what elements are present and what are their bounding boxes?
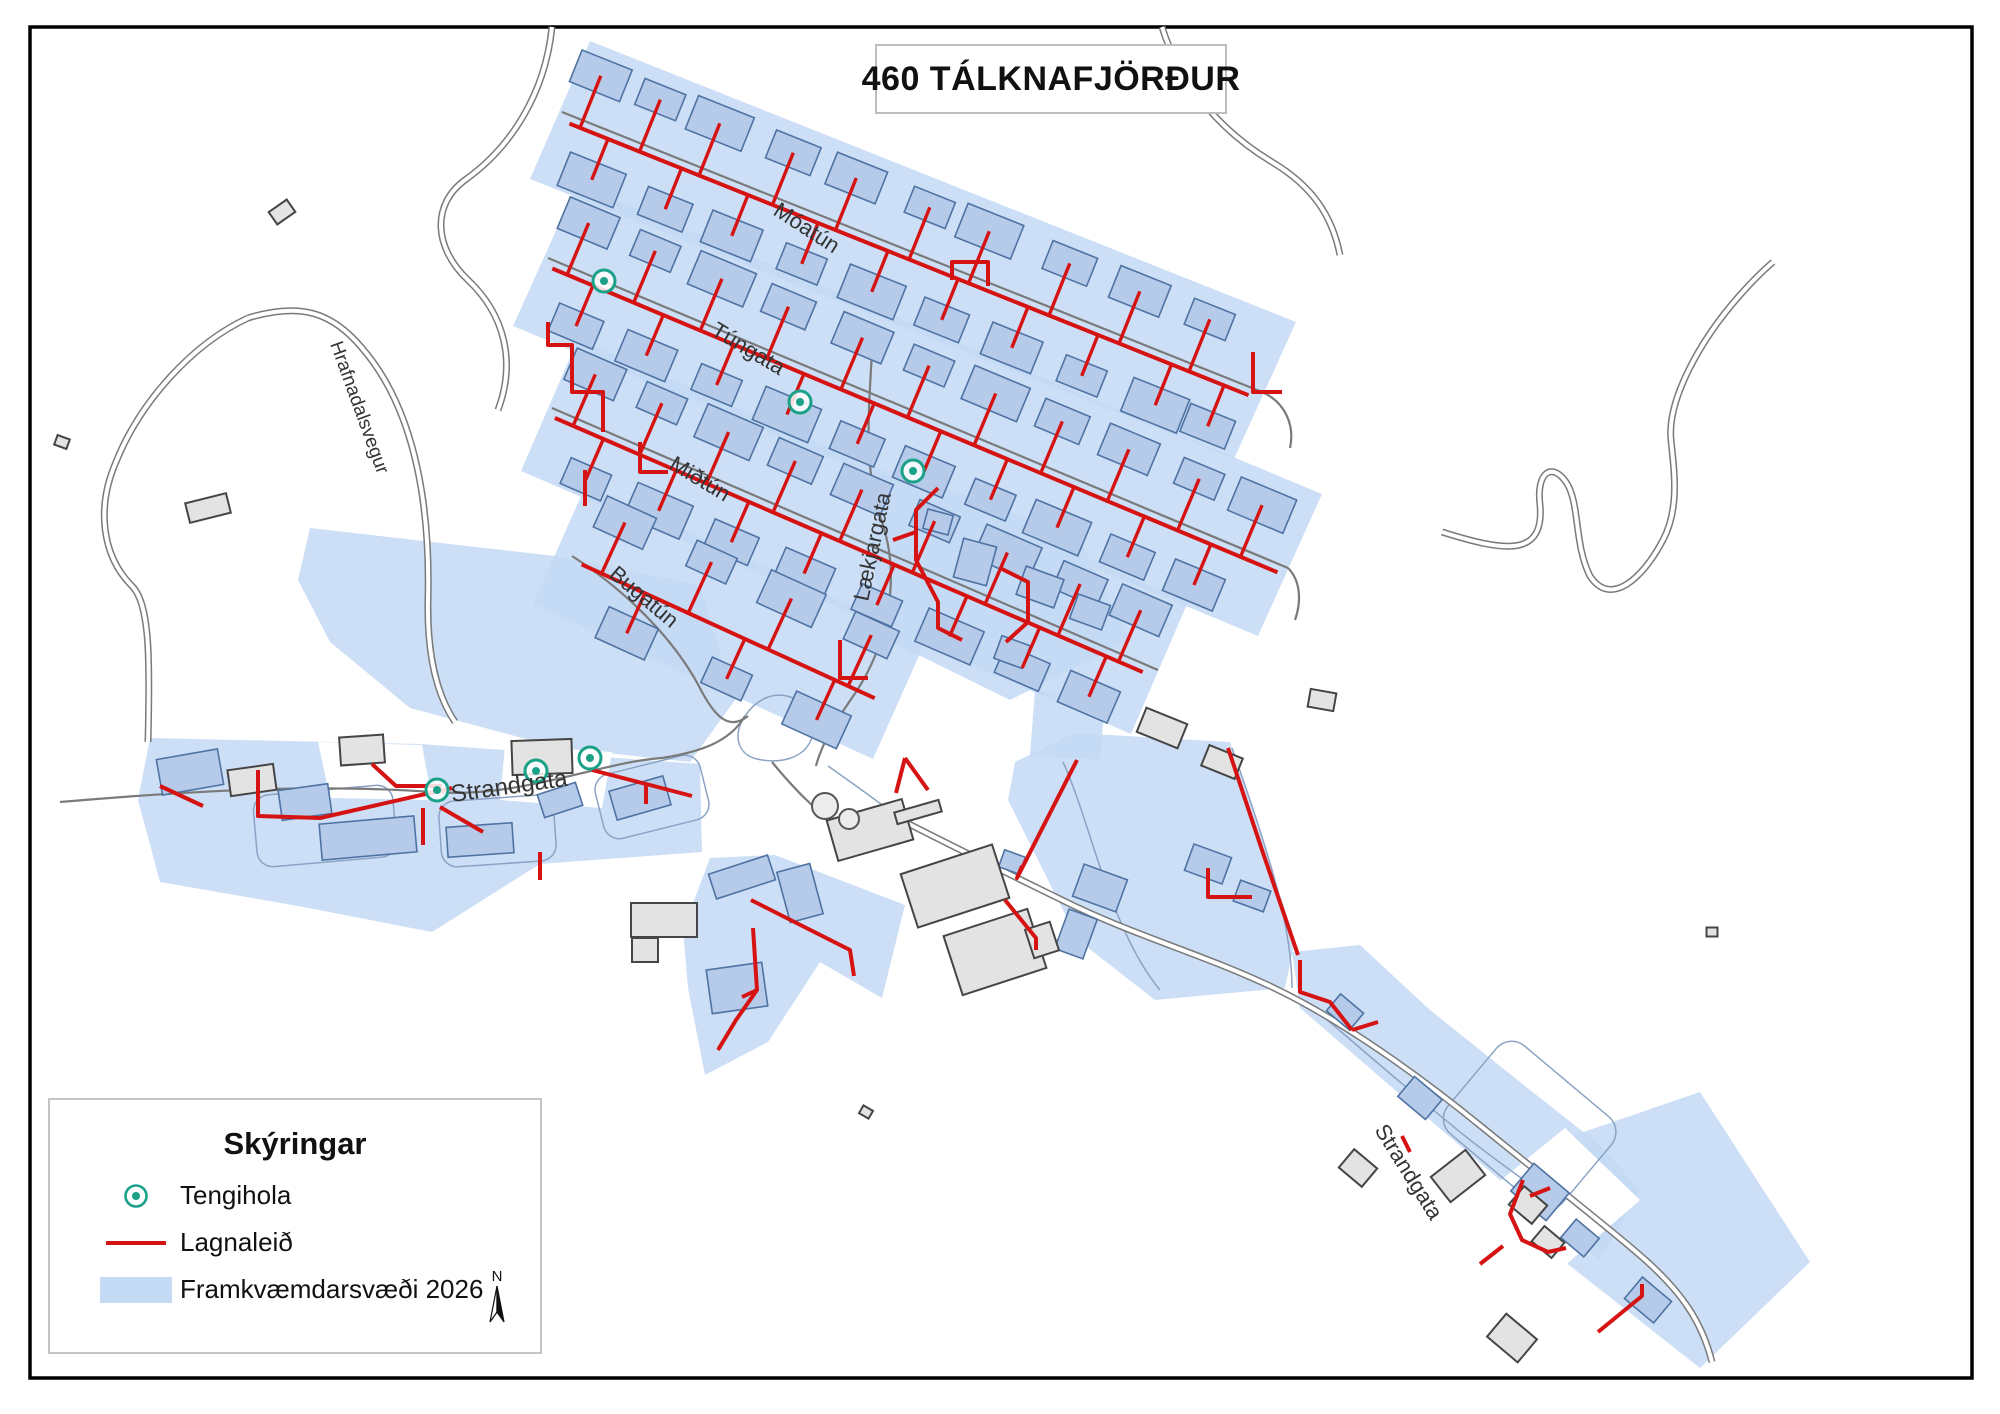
tengihola-point [579,747,601,769]
legend: Skýringar Tengihola Lagnaleið Framkvæmda… [48,1098,542,1354]
building [1707,928,1718,937]
north-arrow: N [480,1270,514,1330]
north-arrow-icon [487,1284,507,1324]
legend-item-lagnaleid: Lagnaleið [92,1227,540,1258]
building [631,903,697,937]
tengihola-point-icon [92,1181,180,1211]
map-title-box: 460 TÁLKNAFJÖRÐUR [875,44,1227,114]
building [1308,689,1337,711]
pipe-route-line-icon [92,1238,180,1248]
map-page: Hrafnadalsvegur Móatún Túngata Miðtún Bu… [0,0,2000,1414]
building [632,938,658,962]
tengihola-point [593,270,615,292]
building [446,823,514,858]
building [339,734,385,765]
legend-item-label: Framkvæmdarsvæði 2026 [180,1274,483,1305]
tank-circle [839,809,859,829]
tank-circle [812,793,838,819]
tengihola-point [426,779,448,801]
north-arrow-label: N [480,1270,514,1284]
building [319,816,417,860]
legend-title: Skýringar [50,1126,540,1162]
work-area-swatch-icon [92,1276,180,1304]
map-title: 460 TÁLKNAFJÖRÐUR [862,60,1241,99]
legend-item-label: Tengihola [180,1180,291,1211]
legend-item-tengihola: Tengihola [92,1180,540,1211]
legend-item-framkvaemdarsvaedi: Framkvæmdarsvæði 2026 [92,1274,540,1305]
building [278,784,332,821]
tengihola-point [789,391,811,413]
building [227,764,276,796]
tengihola-point [902,460,924,482]
legend-item-label: Lagnaleið [180,1227,293,1258]
